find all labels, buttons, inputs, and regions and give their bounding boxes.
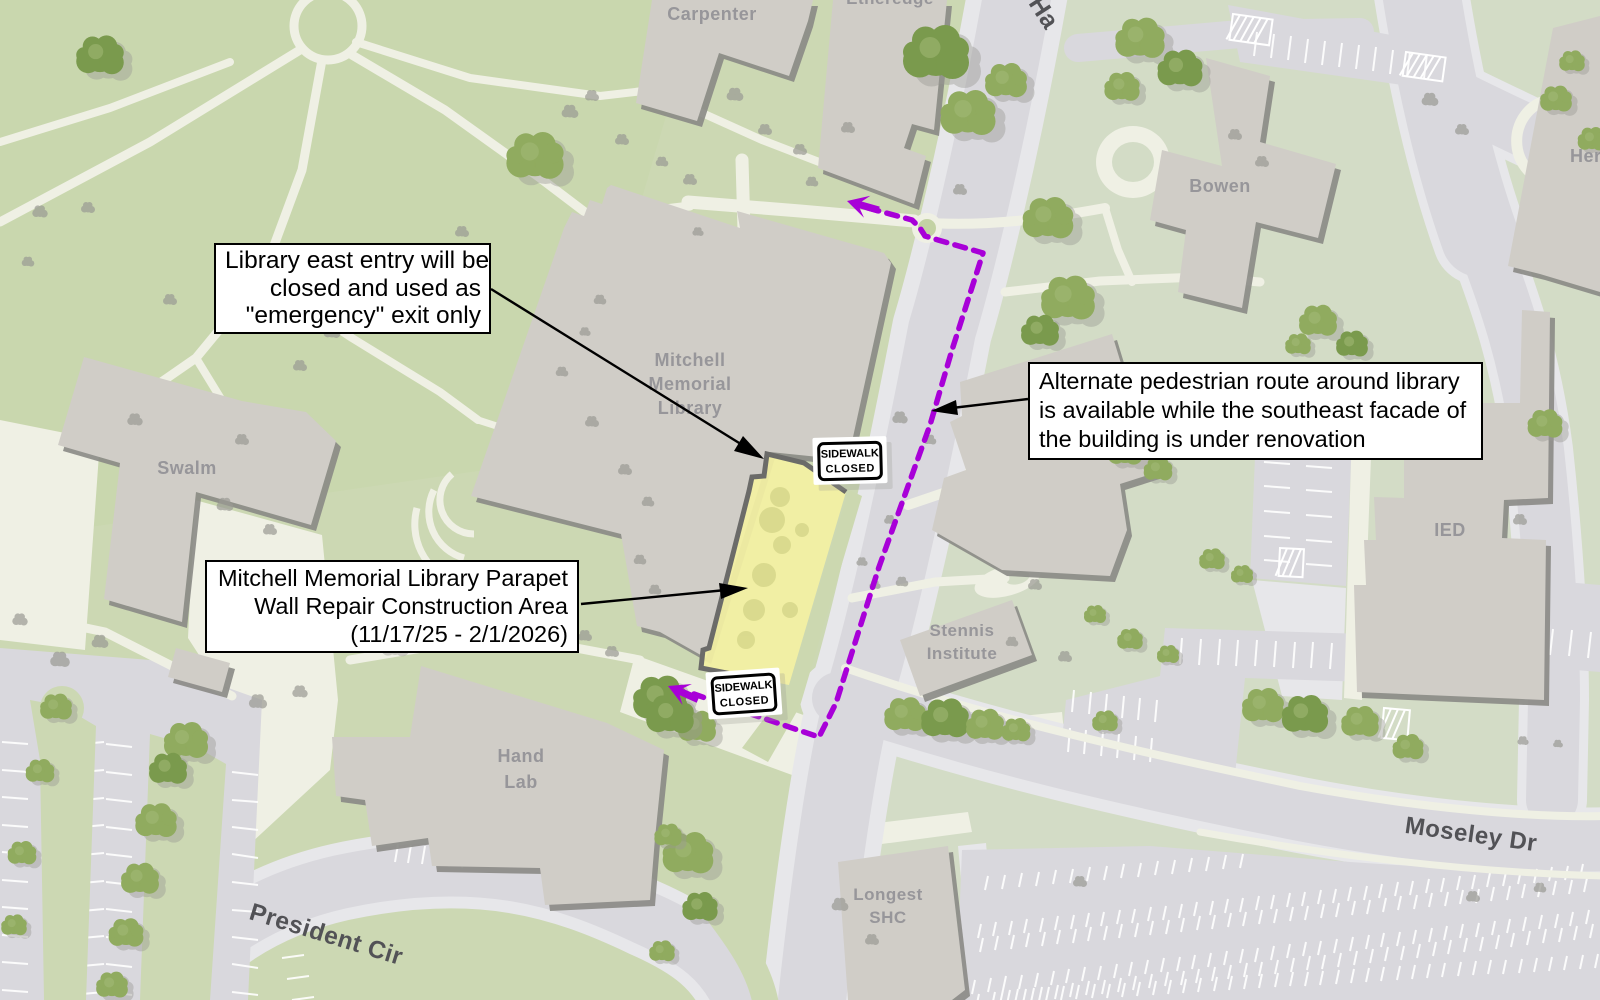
svg-text:Etheredge: Etheredge (846, 0, 934, 8)
svg-text:IED: IED (1434, 520, 1466, 540)
svg-text:Swalm: Swalm (157, 458, 217, 478)
svg-text:CLOSED: CLOSED (825, 462, 875, 475)
svg-text:Her: Her (1570, 146, 1600, 166)
svg-text:Bowen: Bowen (1189, 176, 1251, 196)
svg-text:SIDEWALK: SIDEWALK (821, 447, 879, 461)
svg-text:Carpenter: Carpenter (667, 4, 757, 24)
svg-text:MitchellMemorialLibrary: MitchellMemorialLibrary (648, 350, 731, 418)
